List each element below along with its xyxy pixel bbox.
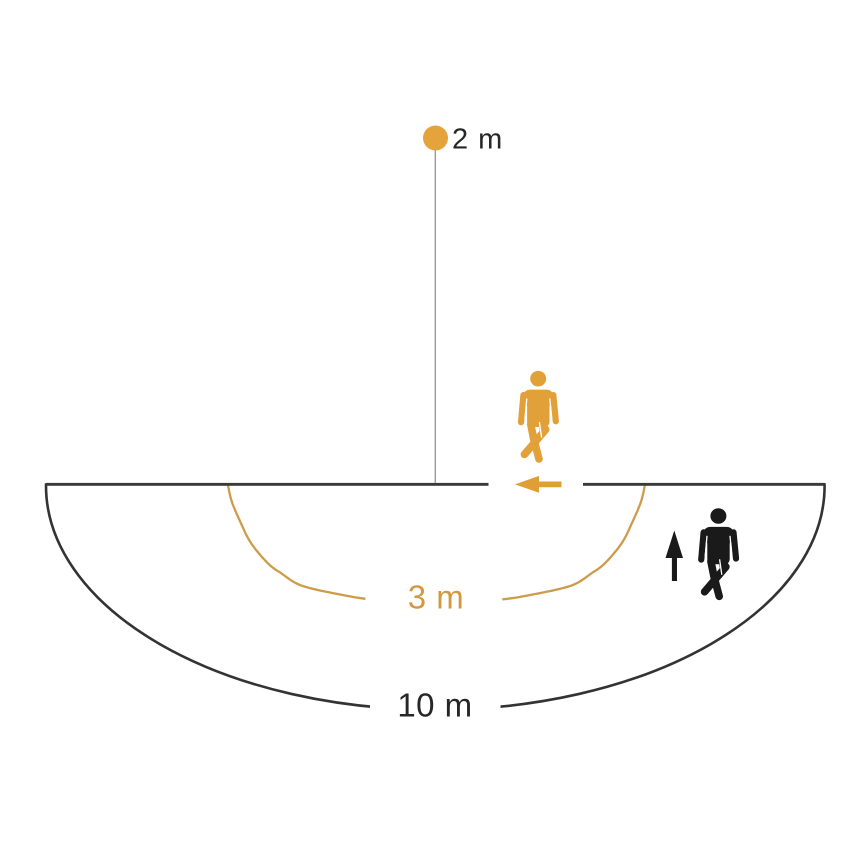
svg-text:2 m: 2 m [452,124,503,156]
svg-text:3 m: 3 m [408,579,465,616]
svg-text:10 m: 10 m [397,687,472,724]
